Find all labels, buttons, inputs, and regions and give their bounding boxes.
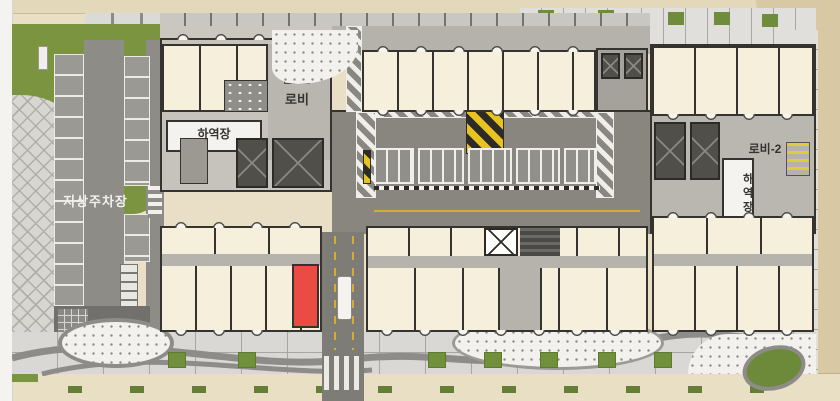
street-planter — [598, 352, 616, 368]
service-room — [180, 138, 208, 184]
road-lane-dashes — [334, 236, 336, 350]
interior-parking-group — [516, 148, 560, 184]
walkway-planter — [668, 12, 684, 25]
label-ground-parking: 지상주차장 — [38, 195, 153, 209]
walkway-planter — [714, 12, 730, 25]
door-arcs — [162, 220, 318, 228]
north-units-row — [362, 50, 596, 112]
door-arcs — [654, 114, 812, 122]
parking-stalls-left — [54, 54, 84, 306]
sw-units-top-row — [162, 228, 320, 254]
interior-parking-group — [418, 148, 464, 184]
elevator-core — [690, 122, 720, 180]
road-lane-dashes — [352, 236, 354, 350]
east-units-top — [652, 46, 814, 116]
label-loading-dock-left: 하역장 — [166, 128, 262, 141]
elevator-core — [236, 138, 268, 188]
street-planter — [484, 352, 502, 368]
interior-parking-group — [468, 148, 512, 184]
street-planter — [654, 352, 672, 368]
crosswalk-south — [324, 356, 362, 390]
guard-booth — [38, 46, 48, 70]
plaza-oval-left — [58, 318, 174, 368]
door-arcs — [164, 32, 268, 40]
right-road-band — [816, 0, 840, 401]
site-floor-plan: 지상주차장 로비 하역장 로비-2 하역장 — [0, 0, 840, 401]
x-marked-room — [484, 228, 518, 256]
bottom-hedge-dashes — [20, 386, 810, 393]
upper-strip — [160, 13, 650, 26]
label-loading-dock-right: 하역장 — [724, 164, 752, 224]
street-planter — [168, 352, 186, 368]
door-arcs — [364, 44, 594, 52]
hazard-stripe-small-left — [363, 150, 371, 184]
door-arcs — [364, 110, 594, 118]
yard-lane-line — [374, 210, 640, 212]
door-arcs — [654, 330, 812, 338]
yard-dashed-edge — [374, 186, 600, 190]
label-lobby-2: 로비-2 — [734, 143, 796, 156]
stair-block — [520, 228, 560, 256]
restrooms — [224, 80, 268, 112]
street-planter — [540, 352, 558, 368]
parking-stalls-right-upper — [124, 56, 150, 186]
door-arcs — [368, 330, 646, 338]
stair-core — [601, 53, 620, 79]
highlighted-unit[interactable] — [292, 264, 319, 328]
elevator-core — [654, 122, 686, 180]
walkway-planter — [762, 14, 778, 27]
south-center-block — [366, 226, 648, 332]
door-arcs — [162, 330, 290, 338]
southeast-block — [652, 216, 814, 332]
interior-parking-group — [374, 148, 414, 184]
street-planter — [238, 352, 256, 368]
elevator-core — [272, 138, 324, 188]
interior-parking-group — [564, 148, 596, 184]
stair-core — [624, 53, 643, 79]
se-units-bottom-row — [654, 266, 812, 330]
label-lobby-1: 로비 — [275, 93, 319, 107]
south-entry-gap — [498, 268, 542, 330]
street-planter — [428, 352, 446, 368]
parking-stalls-right-lower — [124, 214, 150, 262]
traffic-island — [337, 276, 352, 320]
parking-drive-aisle — [84, 40, 124, 338]
